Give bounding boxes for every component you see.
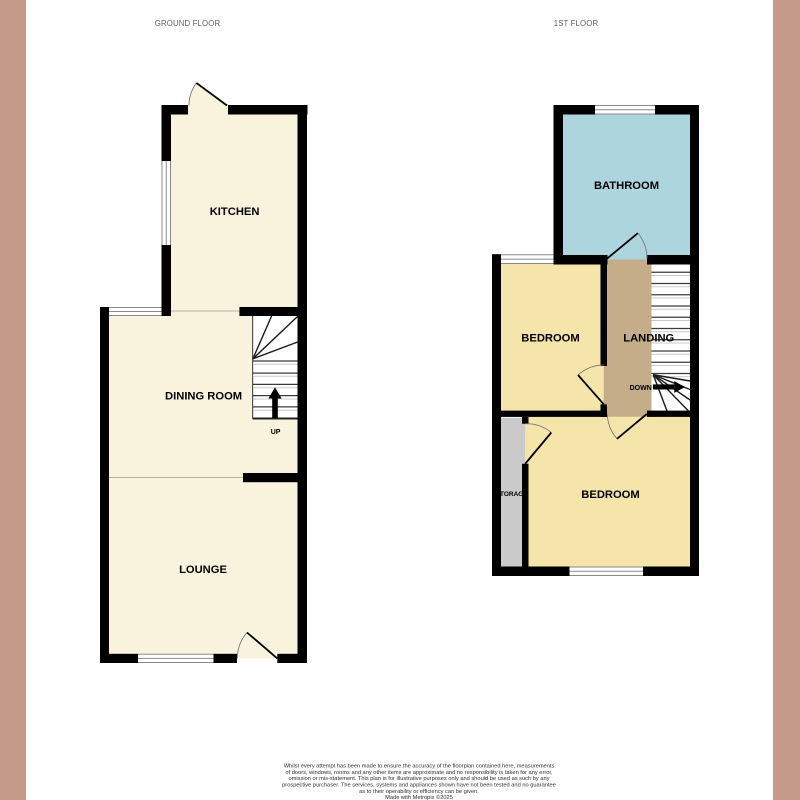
svg-text:LANDING: LANDING bbox=[623, 333, 674, 345]
svg-text:DOWN: DOWN bbox=[630, 385, 652, 392]
svg-text:KITCHEN: KITCHEN bbox=[210, 206, 260, 218]
svg-text:BEDROOM: BEDROOM bbox=[521, 333, 579, 345]
svg-text:LOUNGE: LOUNGE bbox=[179, 564, 227, 576]
svg-text:UP: UP bbox=[271, 429, 281, 436]
svg-text:as to their operability or eff: as to their operability or efficiency ca… bbox=[359, 789, 479, 795]
svg-text:of doors, windows, rooms and a: of doors, windows, rooms and any other i… bbox=[285, 770, 553, 776]
svg-text:BATHROOM: BATHROOM bbox=[594, 180, 659, 192]
svg-text:DINING ROOM: DINING ROOM bbox=[165, 390, 242, 402]
svg-text:GROUND FLOOR: GROUND FLOOR bbox=[155, 19, 221, 28]
svg-text:omission or mis-statement. Thi: omission or mis-statement. This plan is … bbox=[288, 776, 549, 782]
svg-text:BEDROOM: BEDROOM bbox=[581, 489, 639, 501]
svg-text:prospective purchaser. The ser: prospective purchaser. The services, sys… bbox=[282, 783, 556, 789]
svg-text:1ST FLOOR: 1ST FLOOR bbox=[554, 19, 599, 28]
svg-text:Made with Metropix ©2025: Made with Metropix ©2025 bbox=[385, 794, 453, 800]
svg-text:Whilst every attempt has been: Whilst every attempt has been made to en… bbox=[284, 764, 555, 770]
